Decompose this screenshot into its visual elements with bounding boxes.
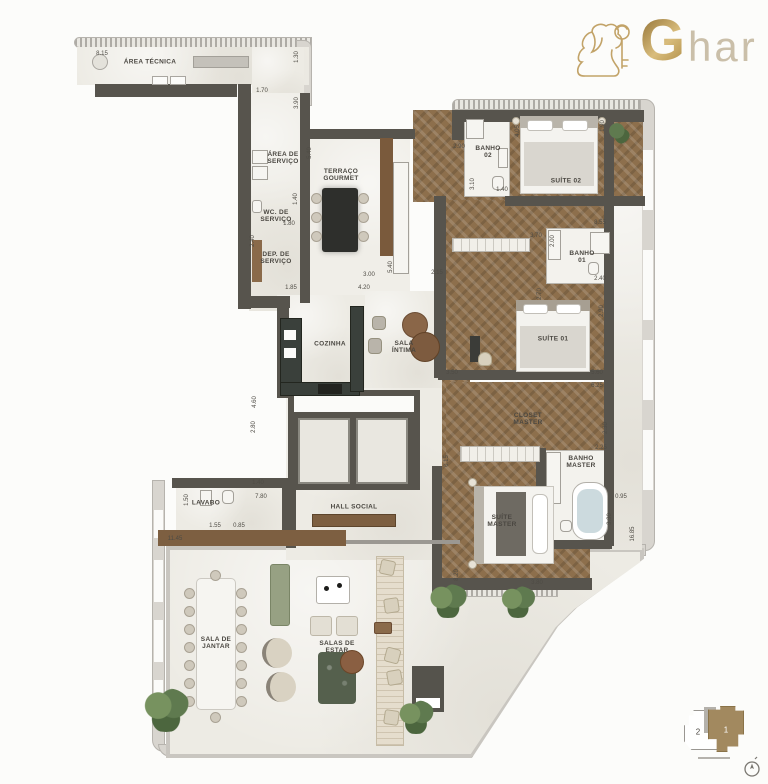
chair: [236, 642, 247, 653]
wall: [505, 196, 645, 206]
toilet-icon: [252, 200, 262, 213]
chair: [184, 624, 195, 635]
bed-blanket: [520, 326, 586, 368]
brand-letter-g: G: [640, 12, 685, 70]
bed-dark-throw: [496, 492, 526, 556]
plant: [498, 586, 538, 618]
nightstand: [468, 560, 477, 569]
kitchen-counter-right: [350, 306, 364, 392]
pillow: [532, 494, 548, 554]
armchair: [372, 316, 386, 330]
bed-blanket: [524, 142, 594, 186]
chair: [184, 588, 195, 599]
chair: [311, 231, 322, 242]
wall: [432, 466, 442, 592]
dimension-label: 2.80: [251, 421, 257, 433]
round-lounge-chair: [410, 332, 440, 362]
elevator-cabin-left: [298, 418, 350, 484]
wicker-chair: [383, 597, 400, 614]
wicker-chair: [379, 559, 397, 577]
armchair: [368, 338, 382, 354]
round-armchair: [262, 638, 292, 668]
dining-table: [196, 578, 236, 710]
wall: [95, 84, 237, 97]
keyplan: 2 1: [682, 702, 748, 754]
chair: [311, 193, 322, 204]
pillow: [556, 304, 581, 314]
chair: [236, 696, 247, 707]
toilet-lavabo: [222, 490, 234, 504]
sofa-module: [310, 616, 332, 636]
insulation-band-right-wing-top: [452, 99, 648, 110]
toilet-bath-master: [560, 520, 572, 532]
equipment-box: [170, 76, 186, 85]
keyplan-caption-text: [698, 757, 730, 759]
terrace-cabinet: [380, 138, 393, 256]
nightstand: [468, 478, 477, 487]
nightstand: [512, 117, 520, 125]
keyplan-unit-1-number: 1: [724, 726, 728, 735]
window-strip: [643, 340, 653, 400]
plant: [396, 700, 436, 734]
chair: [358, 231, 369, 242]
chair: [236, 660, 247, 671]
glass-line-living: [344, 540, 460, 544]
toilet-bath02: [492, 176, 504, 190]
elevator-cabin-right: [356, 418, 408, 484]
nightstand: [598, 117, 606, 125]
plant: [140, 688, 192, 732]
compass-icon: [742, 756, 762, 778]
dimension-label: 4.60: [252, 396, 258, 408]
plant: [608, 122, 630, 144]
washtub-icon: [252, 166, 268, 180]
chair: [210, 712, 221, 723]
chair: [184, 660, 195, 671]
wall: [604, 110, 614, 546]
pillow: [527, 120, 553, 131]
chair: [184, 606, 195, 617]
keyplan-unit-2-number: 2: [696, 728, 700, 737]
toilet-bath01: [588, 262, 599, 275]
wardrobe-suite01: [452, 238, 530, 252]
plant: [426, 584, 470, 618]
round-armchair: [266, 672, 296, 702]
chair: [358, 212, 369, 223]
fire-table-burner: [337, 583, 342, 588]
fire-table: [316, 576, 350, 604]
wall: [452, 110, 464, 140]
sink-bath02: [498, 148, 508, 168]
pillow: [523, 304, 548, 314]
floor-plan-canvas: G har: [0, 0, 768, 784]
side-table: [374, 622, 392, 634]
structural-beam: [158, 530, 346, 546]
fire-table-burner: [324, 586, 329, 591]
armchair: [478, 352, 492, 366]
chair: [184, 678, 195, 689]
sink-lavabo: [200, 490, 212, 506]
equipment-box: [152, 76, 168, 85]
sink-bath01: [548, 230, 561, 260]
sofa-module: [336, 616, 358, 636]
lion-key-icon: [570, 18, 640, 82]
bed-headboard: [474, 486, 484, 564]
washer-icon: [252, 150, 268, 164]
wall: [172, 478, 292, 488]
window-strip: [154, 620, 163, 662]
bathtub-water: [577, 489, 603, 533]
elevator-vestibule: [294, 396, 414, 412]
chair: [236, 624, 247, 635]
wall: [238, 84, 251, 309]
terrace-counter: [393, 162, 409, 274]
cooktop: [318, 384, 342, 394]
kitchen-sink: [284, 330, 296, 340]
window-strip: [643, 430, 653, 490]
chair: [236, 588, 247, 599]
green-sideboard: [270, 564, 290, 626]
kitchen-appliance: [284, 348, 296, 358]
wall: [305, 129, 415, 139]
wall: [300, 93, 310, 303]
pillow: [562, 120, 588, 131]
chair: [311, 212, 322, 223]
window-strip: [154, 560, 163, 602]
round-ottoman: [340, 650, 364, 674]
wicker-chair: [386, 669, 403, 686]
hall-sideboard: [312, 514, 396, 527]
wardrobe-closet-master: [460, 446, 540, 462]
shower-bath02: [466, 119, 484, 139]
chair: [236, 606, 247, 617]
window-strip: [643, 250, 653, 320]
chair: [184, 642, 195, 653]
ac-units: [193, 56, 249, 68]
shower-bath01: [590, 232, 610, 254]
fan-unit-icon: [92, 54, 108, 70]
service-room-cabinet: [252, 240, 262, 282]
brand-logo: G har: [570, 12, 760, 87]
chair: [236, 678, 247, 689]
lavabo-wing-floor: [176, 480, 284, 534]
chair: [210, 570, 221, 581]
dining-table-gourmet: [322, 188, 358, 252]
brand-word-rest: har: [688, 26, 758, 68]
chair: [358, 193, 369, 204]
